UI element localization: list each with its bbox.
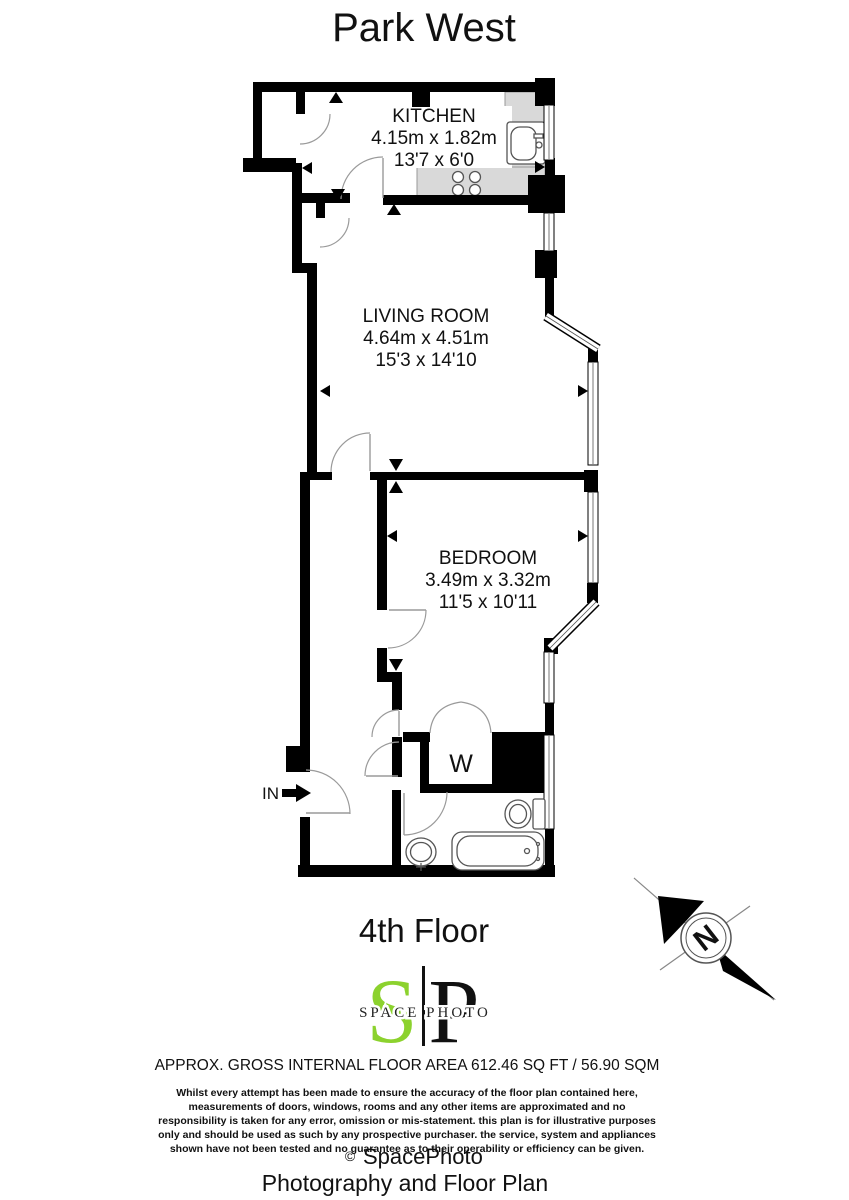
copyright-line: © SpacePhoto bbox=[345, 1144, 483, 1169]
toilet-icon bbox=[505, 799, 545, 829]
entrance-arrow-icon bbox=[282, 784, 311, 802]
copyright-symbol: © bbox=[345, 1148, 356, 1164]
kitchen-sink-icon bbox=[507, 122, 545, 164]
room-living-label: LIVING ROOM 4.64m x 4.51m 15'3 x 14'10 bbox=[363, 306, 490, 371]
svg-text:measurements of doors, windows: measurements of doors, windows, rooms an… bbox=[188, 1101, 625, 1113]
bay-window-diagonal-upper bbox=[546, 316, 598, 349]
svg-text:Whilst every attempt has been: Whilst every attempt has been made to en… bbox=[176, 1087, 638, 1099]
svg-text:4.64m x 4.51m: 4.64m x 4.51m bbox=[363, 328, 489, 349]
floorplan-page: Park West bbox=[0, 0, 849, 1200]
bathtub-icon bbox=[452, 832, 544, 870]
svg-text:responsibility is taken for an: responsibility is taken for any error, o… bbox=[158, 1115, 656, 1127]
entrance-label: IN bbox=[262, 784, 279, 803]
wardrobe-door-right bbox=[461, 702, 491, 733]
svg-text:4.15m x 1.82m: 4.15m x 1.82m bbox=[371, 128, 497, 149]
svg-text:LIVING ROOM: LIVING ROOM bbox=[363, 306, 490, 327]
logo-wordmark: SPACE PHOTO bbox=[359, 1005, 491, 1021]
svg-text:KITCHEN: KITCHEN bbox=[392, 106, 475, 127]
svg-text:only and should be used as suc: only and should be used as such by any p… bbox=[158, 1129, 656, 1141]
svg-text:11'5 x 10'11: 11'5 x 10'11 bbox=[439, 592, 537, 613]
svg-text:15'3 x 14'10: 15'3 x 14'10 bbox=[375, 350, 476, 371]
area-line: APPROX. GROSS INTERNAL FLOOR AREA 612.46… bbox=[155, 1057, 660, 1074]
svg-text:13'7 x 6'0: 13'7 x 6'0 bbox=[394, 150, 474, 171]
wardrobe-label: W bbox=[449, 750, 473, 778]
floorplan-svg: Park West bbox=[0, 0, 849, 1200]
bay-window-diagonal-lower bbox=[550, 602, 596, 648]
wardrobe-door-left bbox=[430, 702, 461, 733]
svg-text:3.49m x 3.32m: 3.49m x 3.32m bbox=[425, 570, 551, 591]
room-bedroom-label: BEDROOM 3.49m x 3.32m 11'5 x 10'11 bbox=[425, 548, 551, 613]
page-title: Park West bbox=[332, 6, 516, 50]
compass-icon: N bbox=[634, 878, 776, 1000]
floor-label: 4th Floor bbox=[359, 912, 489, 949]
copyright-name: SpacePhoto bbox=[363, 1144, 483, 1169]
spacephoto-logo: S P SPACE PHOTO bbox=[359, 960, 491, 1062]
tagline: Photography and Floor Plan bbox=[262, 1170, 548, 1196]
svg-text:BEDROOM: BEDROOM bbox=[439, 548, 537, 569]
